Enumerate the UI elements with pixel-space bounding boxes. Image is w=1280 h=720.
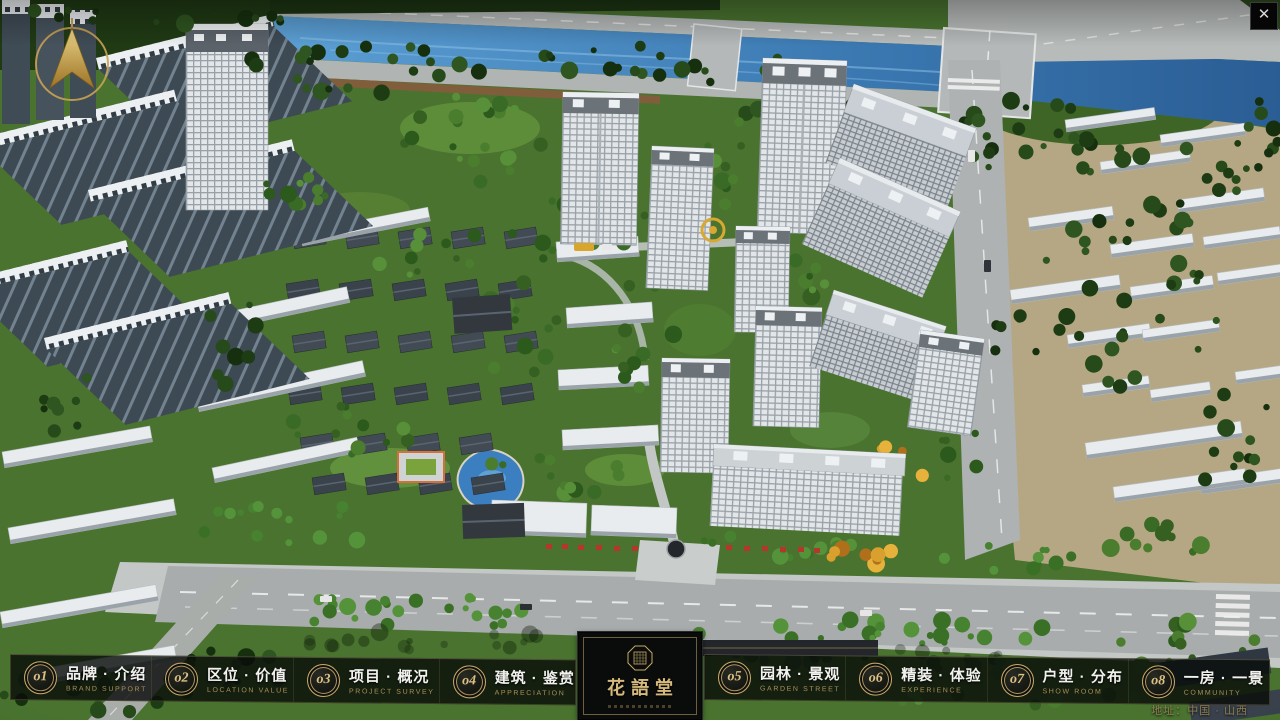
menu-item-label-zh: 建筑 · 鉴赏 (495, 667, 575, 689)
seal-emblem-icon (627, 645, 653, 671)
menu-item-label-en: GARDEN STREET (760, 686, 840, 694)
menu-item-number-badge: o7 (1001, 663, 1034, 696)
menu-item-number-badge: o8 (1142, 665, 1175, 698)
aerial-render-stage (0, 0, 1280, 720)
close-icon: ✕ (1258, 6, 1271, 23)
menu-item-number-badge: o4 (453, 665, 486, 698)
menu-item-number-badge: o6 (859, 662, 892, 695)
menu-item-label-zh: 一房 · 一景 (1184, 667, 1264, 689)
menu-item-label-zh: 户型 · 分布 (1043, 665, 1123, 687)
menu-item-architecture[interactable]: o4 建筑 · 鉴赏 APPRECIATION (439, 659, 579, 704)
menu-item-label-en: LOCATION VALUE (207, 687, 289, 695)
project-logo-title: 花語堂 (601, 674, 679, 700)
menu-item-label-en: SHOW ROOM (1043, 688, 1123, 696)
close-button[interactable]: ✕ (1250, 2, 1278, 30)
menu-item-number-badge: o3 (307, 663, 340, 696)
bottom-menu-right: o5 园林 · 景观 GARDEN STREET o6 精装 · 体验 EXPE… (704, 654, 1270, 705)
project-logo[interactable]: 花語堂 (578, 632, 702, 720)
menu-item-number-badge: o5 (718, 661, 751, 694)
menu-item-brand-intro[interactable]: o1 品牌 · 介绍 BRAND SUPPORT (11, 655, 151, 700)
menu-item-label-zh: 区位 · 价值 (207, 664, 289, 686)
menu-item-label-en: PROJECT SURVEY (349, 688, 435, 696)
project-address: 地址：中国 · 山西 (1151, 702, 1248, 718)
menu-item-floorplan-distribution[interactable]: o7 户型 · 分布 SHOW ROOM (987, 658, 1128, 703)
project-logo-subtitle (608, 705, 672, 708)
menu-item-label-zh: 园林 · 景观 (760, 663, 840, 685)
menu-item-label-en: APPRECIATION (495, 690, 575, 698)
menu-item-label-zh: 项目 · 概况 (349, 665, 435, 687)
menu-item-interior-experience[interactable]: o6 精装 · 体验 EXPERIENCE (845, 656, 986, 701)
menu-item-number-badge: o2 (165, 662, 198, 695)
bottom-menu-left: o1 品牌 · 介绍 BRAND SUPPORT o2 区位 · 价值 LOCA… (10, 654, 576, 705)
menu-item-room-view[interactable]: o8 一房 · 一景 COMMUNITY (1128, 659, 1269, 704)
menu-item-number-badge: o1 (24, 661, 57, 694)
menu-item-project-overview[interactable]: o3 项目 · 概况 PROJECT SURVEY (293, 658, 439, 703)
menu-item-label-en: COMMUNITY (1184, 690, 1264, 698)
menu-item-label-zh: 精装 · 体验 (901, 664, 981, 686)
menu-item-location-value[interactable]: o2 区位 · 价值 LOCATION VALUE (151, 656, 293, 701)
menu-item-label-zh: 品牌 · 介绍 (66, 663, 147, 685)
project-logo-frame: 花語堂 (583, 637, 697, 715)
menu-item-label-en: BRAND SUPPORT (66, 686, 147, 694)
menu-item-label-en: EXPERIENCE (901, 687, 981, 695)
menu-item-landscape[interactable]: o5 园林 · 景观 GARDEN STREET (705, 655, 845, 700)
site-plan-render (0, 0, 1280, 720)
